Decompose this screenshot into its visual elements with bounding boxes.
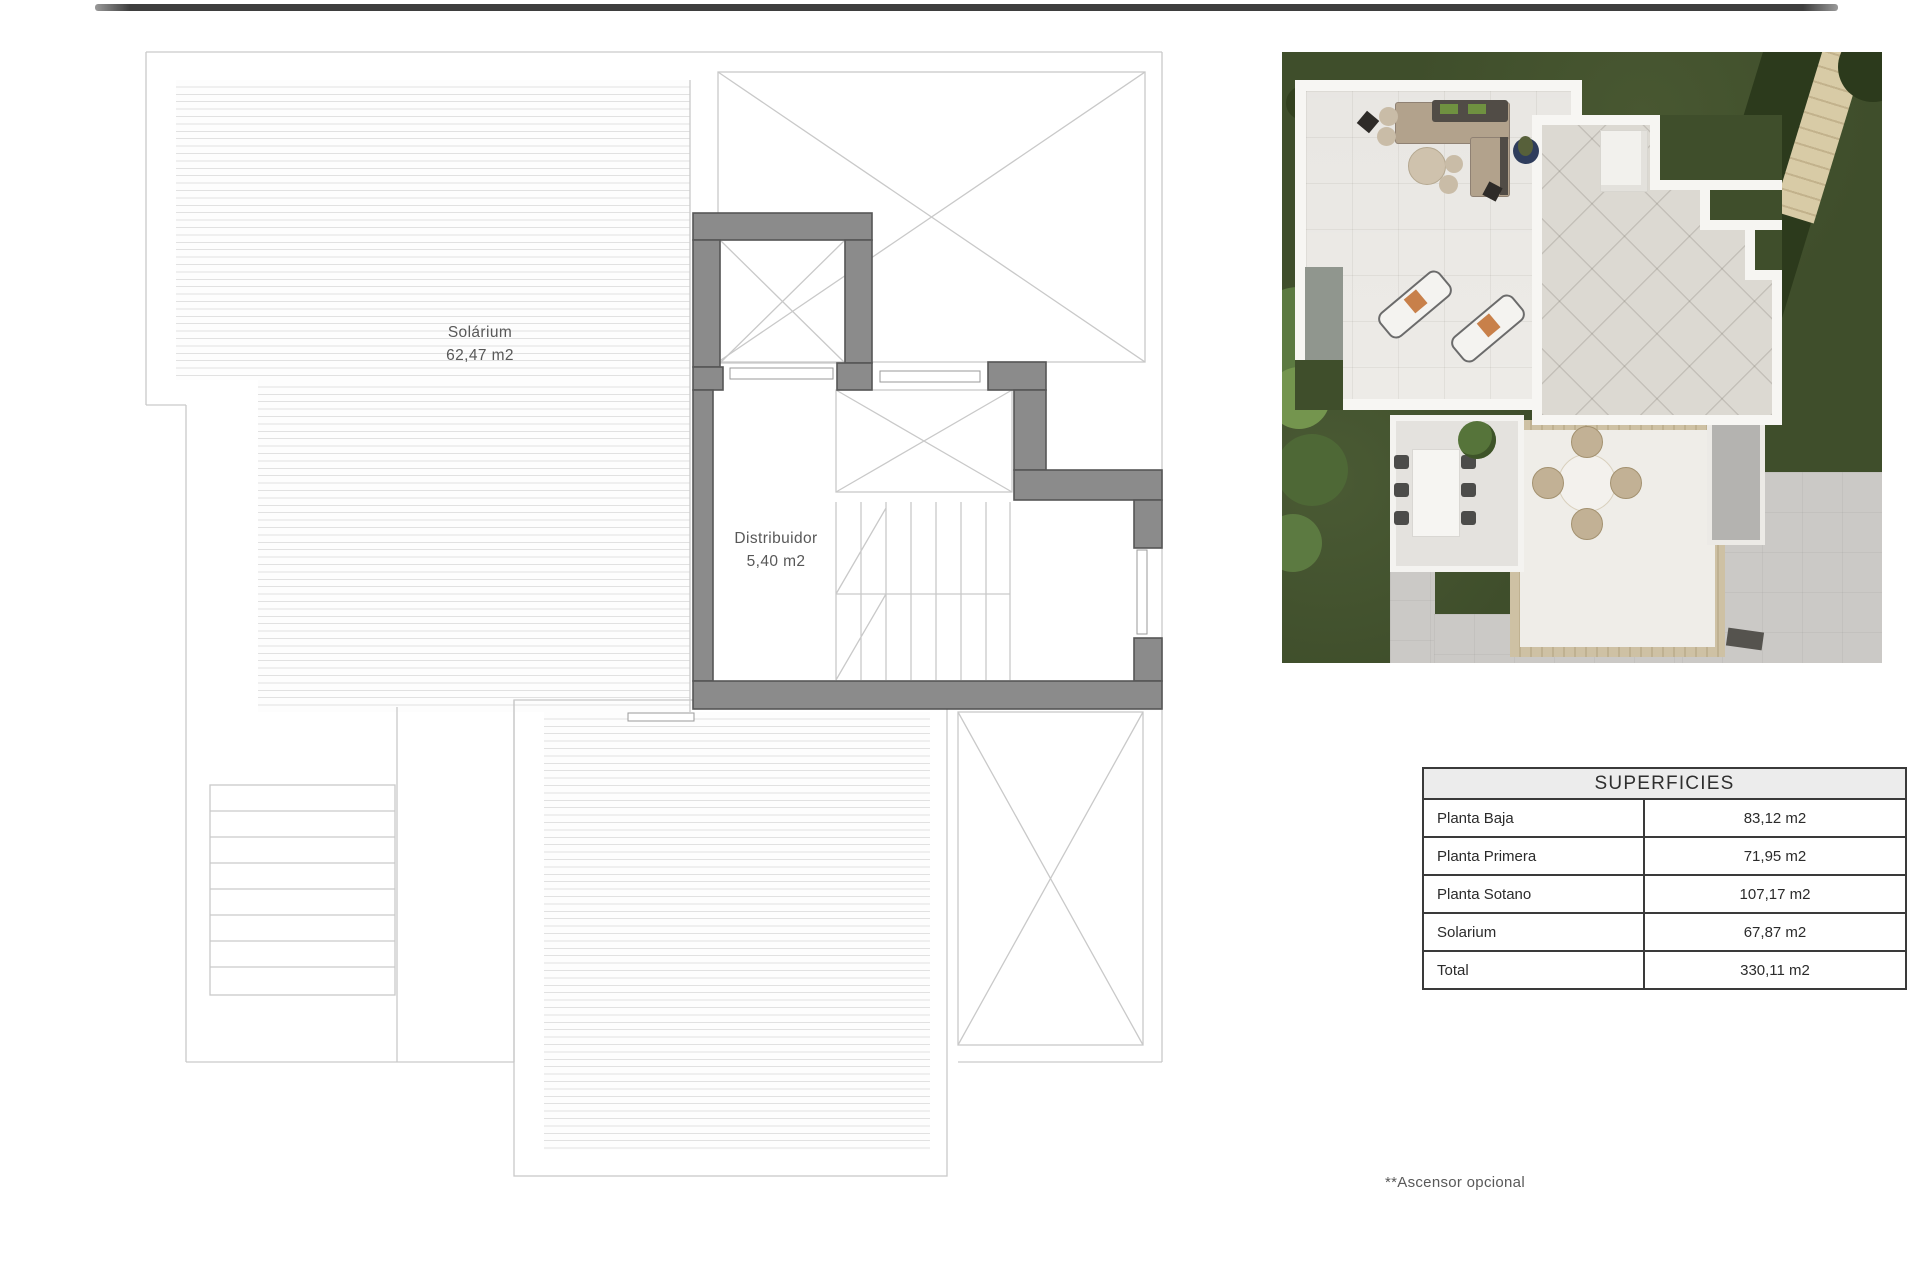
row-label: Planta Sotano xyxy=(1424,876,1645,912)
table-row: Planta Baja 83,12 m2 xyxy=(1424,800,1905,838)
superficies-table: SUPERFICIES Planta Baja 83,12 m2 Planta … xyxy=(1422,767,1907,990)
roof-step-cut xyxy=(1650,115,1782,190)
room-area: 62,47 m2 xyxy=(380,344,580,367)
chair xyxy=(1394,511,1409,525)
sofa-pillow xyxy=(1468,104,1486,114)
dining-chair xyxy=(1610,467,1642,499)
terrace-dining-floor xyxy=(1520,430,1715,647)
sofa-pillow xyxy=(1440,104,1458,114)
stairwell-void xyxy=(1707,420,1765,545)
room-name: Solárium xyxy=(380,321,580,344)
table-title: SUPERFICIES xyxy=(1424,769,1905,800)
paving-path xyxy=(1390,560,1435,663)
plant-pot-foliage xyxy=(1518,136,1533,156)
room-name: Distribuidor xyxy=(676,527,876,550)
pouf xyxy=(1445,155,1463,173)
patio-dining xyxy=(1390,415,1524,572)
tree xyxy=(1282,514,1322,572)
terrace-dining xyxy=(1510,420,1725,657)
pouf xyxy=(1377,127,1396,146)
dining-table-rect xyxy=(1412,449,1460,537)
lounger-towel xyxy=(1404,289,1428,313)
room-label-distribuidor: Distribuidor 5,40 m2 xyxy=(676,527,876,573)
chair xyxy=(1461,511,1476,525)
roof-hut xyxy=(1600,130,1648,192)
pouf xyxy=(1439,175,1458,194)
patio-shadow xyxy=(1305,267,1343,360)
row-value: 71,95 m2 xyxy=(1645,838,1905,874)
room-area: 5,40 m2 xyxy=(676,550,876,573)
lounger-towel xyxy=(1477,313,1501,337)
floor-plan-linework xyxy=(0,0,1220,1280)
chair xyxy=(1461,483,1476,497)
dining-chair xyxy=(1571,508,1603,540)
row-value: 330,11 m2 xyxy=(1645,952,1905,988)
row-value: 67,87 m2 xyxy=(1645,914,1905,950)
grass-notch xyxy=(1295,360,1343,410)
table-row: Total 330,11 m2 xyxy=(1424,952,1905,988)
row-value: 107,17 m2 xyxy=(1645,876,1905,912)
aerial-rooftop-photo xyxy=(1282,52,1882,663)
floor-plan: Solárium 62,47 m2 Distribuidor 5,40 m2 xyxy=(0,0,1220,1280)
tree xyxy=(1282,434,1348,506)
footnote-ascensor: **Ascensor opcional xyxy=(1385,1174,1525,1191)
dining-table-round xyxy=(1558,454,1616,512)
row-label: Total xyxy=(1424,952,1645,988)
row-value: 83,12 m2 xyxy=(1645,800,1905,836)
dining-chair xyxy=(1571,426,1603,458)
row-label: Planta Primera xyxy=(1424,838,1645,874)
table-row: Planta Sotano 107,17 m2 xyxy=(1424,876,1905,914)
roof-step-cut xyxy=(1745,230,1782,280)
plant xyxy=(1458,421,1496,459)
room-label-solarium: Solárium 62,47 m2 xyxy=(380,321,580,367)
dining-chair xyxy=(1532,467,1564,499)
table-row: Planta Primera 71,95 m2 xyxy=(1424,838,1905,876)
table-row: Solarium 67,87 m2 xyxy=(1424,914,1905,952)
pouf xyxy=(1379,107,1398,126)
sofa-side-cushion xyxy=(1500,137,1508,195)
row-label: Planta Baja xyxy=(1424,800,1645,836)
chair xyxy=(1394,483,1409,497)
chair xyxy=(1394,455,1409,469)
row-label: Solarium xyxy=(1424,914,1645,950)
roof-step-cut xyxy=(1700,190,1782,230)
